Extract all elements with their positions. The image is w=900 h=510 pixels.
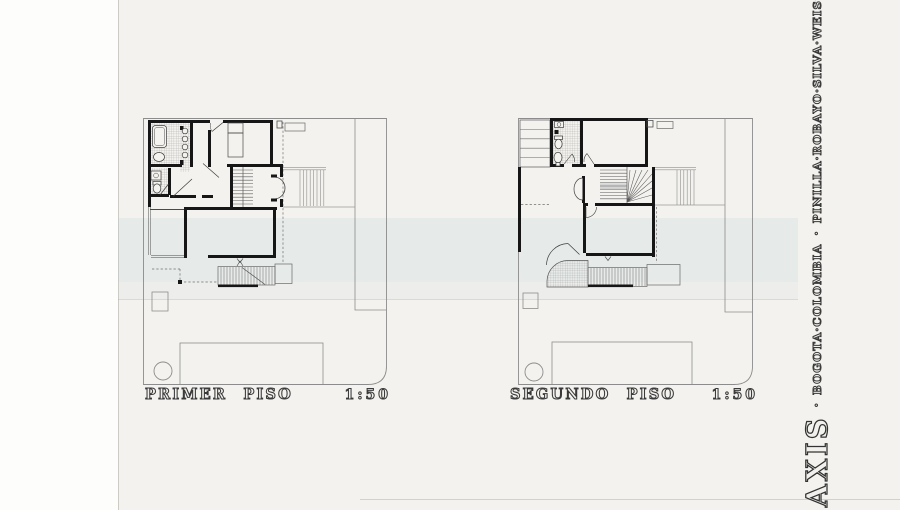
tree-circle bbox=[525, 363, 543, 381]
bed bbox=[228, 123, 243, 157]
sink-basin bbox=[182, 144, 188, 150]
bidet bbox=[154, 153, 165, 162]
stove-burner bbox=[182, 136, 188, 142]
separator-dot: · bbox=[810, 403, 825, 408]
exterior-stair bbox=[218, 259, 292, 288]
window-lines bbox=[149, 207, 185, 258]
exterior-stair bbox=[588, 265, 680, 288]
interior-stair bbox=[233, 167, 253, 207]
toilet-bowl bbox=[153, 184, 161, 193]
firm-name: AXIS bbox=[800, 415, 834, 507]
plan-scale-segundo: 1:50 bbox=[712, 387, 758, 403]
exterior-column-and-planter bbox=[647, 121, 673, 129]
primer-piso-drawing bbox=[140, 100, 390, 400]
railing bbox=[655, 168, 696, 205]
firm-location: BOGOTA·COLOMBIA bbox=[810, 244, 824, 395]
exterior-column-and-planter bbox=[277, 121, 305, 131]
plan-title-primer: PRIMER PISO bbox=[145, 386, 293, 403]
plan-scale-primer: 1:50 bbox=[345, 387, 391, 403]
patio-slab bbox=[180, 343, 323, 385]
primer-piso-caption: PRIMER PISO 1:50 bbox=[145, 386, 391, 403]
separator-dot: · bbox=[810, 231, 825, 236]
interior-stair bbox=[600, 167, 652, 203]
sink-basin bbox=[182, 152, 188, 158]
plan-title-segundo: SEGUNDO PISO bbox=[510, 386, 676, 403]
curved-balcony-tile bbox=[547, 261, 588, 288]
firm-partners: PINILLA·ROBAYO·SILVA·WEISS bbox=[810, 0, 824, 223]
closet-shelves bbox=[520, 120, 550, 167]
column bbox=[178, 280, 182, 284]
segundo-piso-drawing bbox=[505, 100, 765, 400]
planter-box bbox=[523, 293, 538, 309]
firm-branding-column: AXIS · BOGOTA·COLOMBIA · PINILLA·ROBAYO·… bbox=[800, 5, 834, 507]
segundo-piso-caption: SEGUNDO PISO 1:50 bbox=[510, 386, 758, 403]
planter-box bbox=[152, 292, 168, 311]
pedestal-sink bbox=[554, 152, 562, 162]
stove-burner bbox=[182, 128, 188, 134]
curved-niche bbox=[574, 178, 582, 200]
railing bbox=[283, 168, 326, 206]
toilet-bowl bbox=[555, 139, 562, 149]
patio-slab bbox=[552, 342, 692, 385]
tree-circle bbox=[154, 362, 172, 380]
